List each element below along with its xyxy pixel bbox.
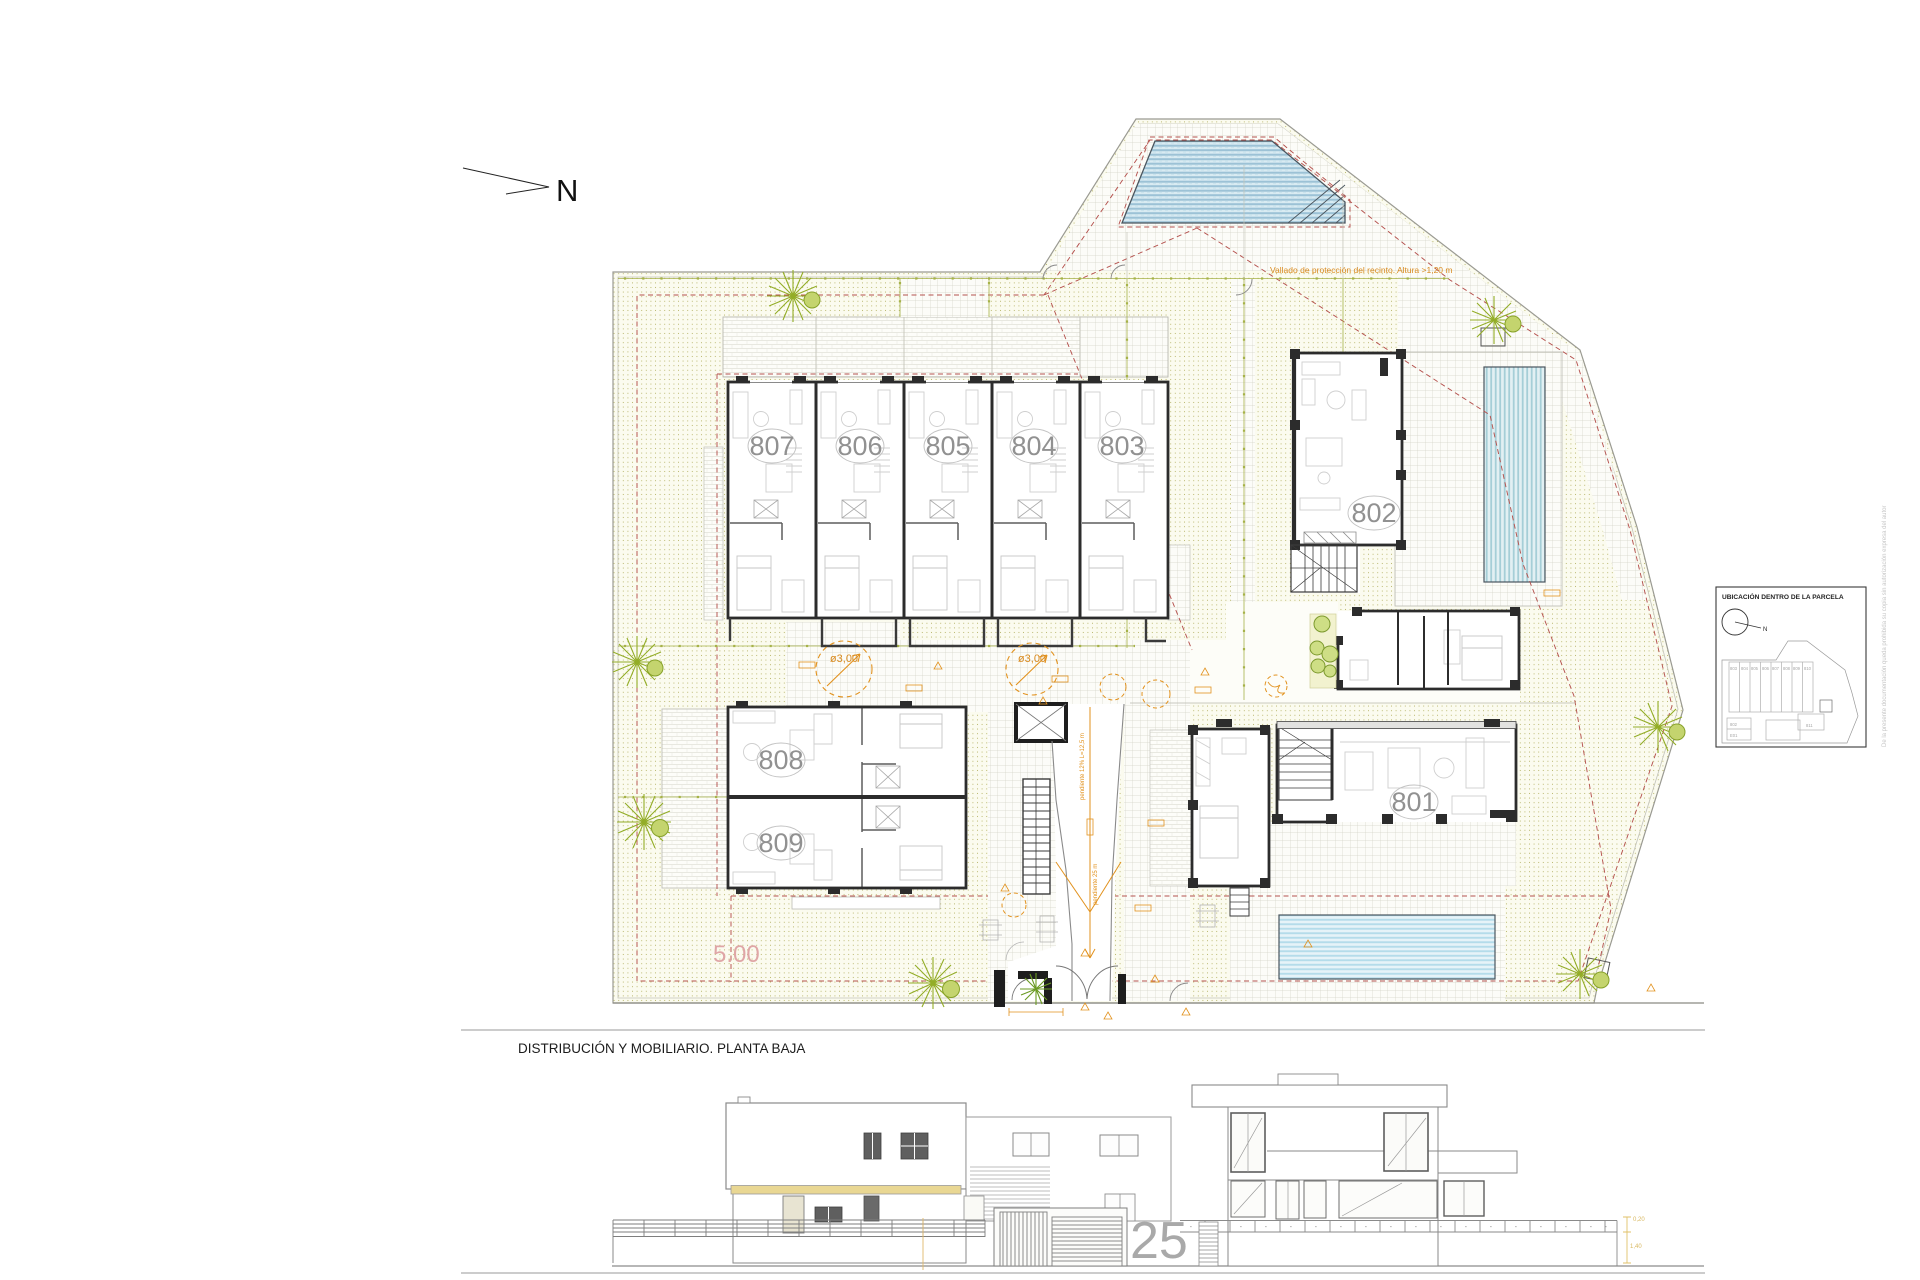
svg-text:ø3,00: ø3,00 xyxy=(830,653,858,665)
svg-text:811: 811 xyxy=(1806,723,1813,728)
svg-text:806: 806 xyxy=(837,431,882,461)
svg-text:808: 808 xyxy=(1783,666,1791,671)
svg-text:806: 806 xyxy=(1762,666,1770,671)
svg-text:Vallado de protección del reci: Vallado de protección del recinto. Altur… xyxy=(1270,265,1452,275)
svg-text:810: 810 xyxy=(1804,666,1812,671)
svg-text:De la presente documentación q: De la presente documentación queda prohi… xyxy=(1882,506,1888,748)
svg-text:N: N xyxy=(1763,627,1767,633)
svg-text:805: 805 xyxy=(925,431,970,461)
svg-text:804: 804 xyxy=(1011,431,1056,461)
svg-text:802: 802 xyxy=(1351,498,1396,528)
svg-text:805: 805 xyxy=(1751,666,1759,671)
svg-text:E01: E01 xyxy=(1730,733,1738,738)
svg-text:0,20: 0,20 xyxy=(1633,1217,1645,1223)
svg-text:802: 802 xyxy=(1730,722,1738,727)
svg-text:5.00: 5.00 xyxy=(713,941,760,968)
svg-text:803: 803 xyxy=(1099,431,1144,461)
svg-text:804: 804 xyxy=(1741,666,1749,671)
svg-text:808: 808 xyxy=(758,745,803,775)
svg-text:25: 25 xyxy=(1130,1212,1188,1270)
svg-text:807: 807 xyxy=(1772,666,1780,671)
svg-text:DISTRIBUCIÓN Y MOBILIARIO. PLA: DISTRIBUCIÓN Y MOBILIARIO. PLANTA BAJA xyxy=(518,1041,805,1056)
svg-text:pendiente 12% L=12,5 m: pendiente 12% L=12,5 m xyxy=(1080,733,1086,800)
svg-text:pendiente 25 m: pendiente 25 m xyxy=(1093,864,1099,905)
svg-text:801: 801 xyxy=(1391,787,1436,817)
svg-text:807: 807 xyxy=(749,431,794,461)
svg-text:ø3,00: ø3,00 xyxy=(1018,653,1046,665)
svg-text:809: 809 xyxy=(758,828,803,858)
svg-text:803: 803 xyxy=(1730,666,1738,671)
svg-text:N: N xyxy=(556,173,578,208)
svg-text:1,40: 1,40 xyxy=(1630,1244,1642,1250)
svg-text:809: 809 xyxy=(1793,666,1801,671)
svg-text:UBICACIÓN DENTRO DE LA PARCELA: UBICACIÓN DENTRO DE LA PARCELA xyxy=(1722,592,1844,601)
